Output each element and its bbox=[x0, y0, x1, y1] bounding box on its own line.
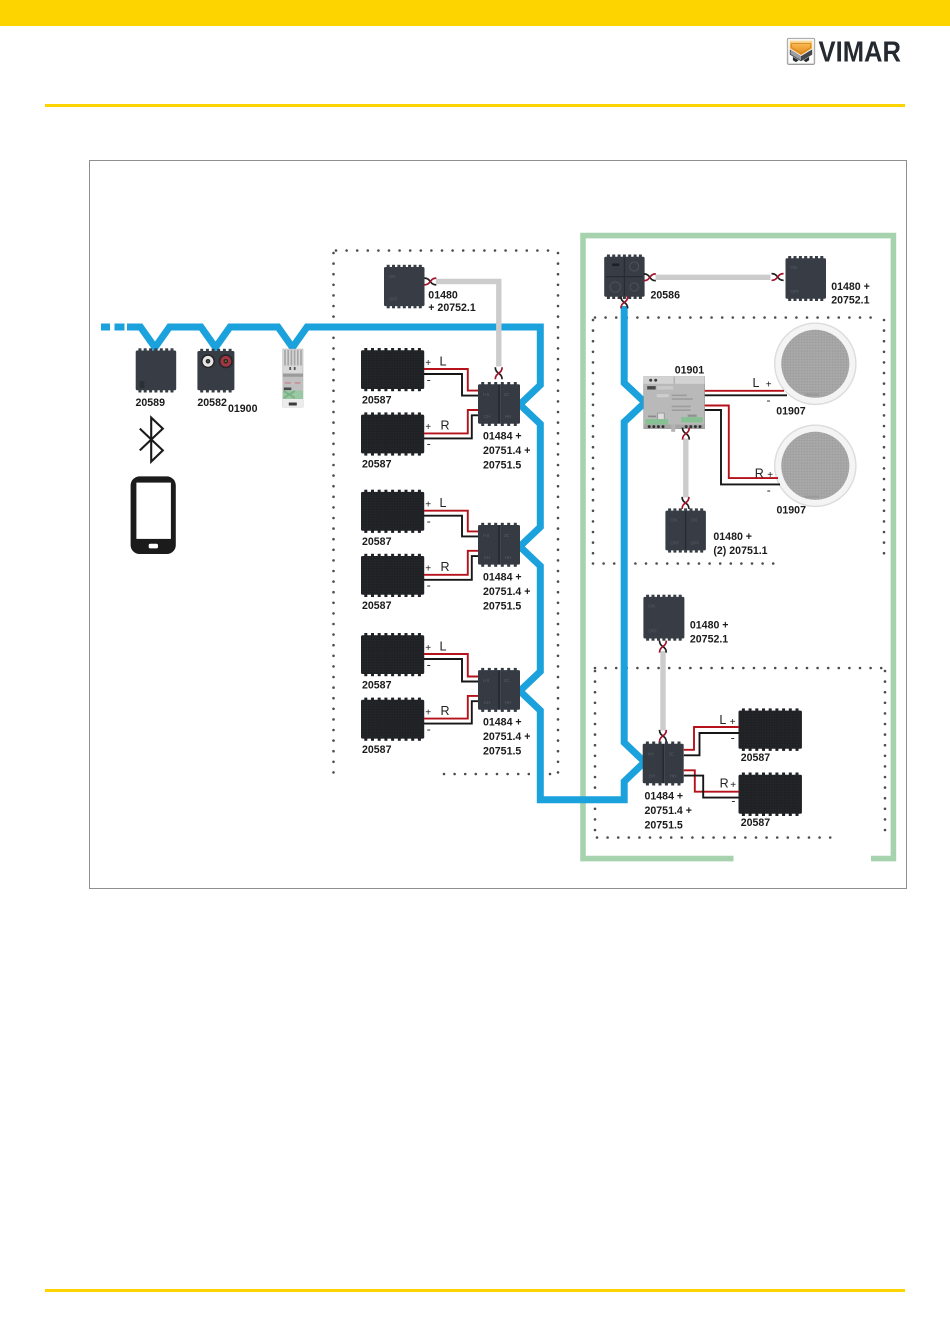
svg-text:ON: ON bbox=[648, 604, 654, 609]
svg-text:+ 20752.1: + 20752.1 bbox=[428, 302, 476, 314]
svg-text:ON: ON bbox=[670, 517, 676, 522]
svg-text:01484 +: 01484 + bbox=[645, 791, 684, 803]
svg-text:ON: ON bbox=[691, 517, 697, 522]
svg-text:L: L bbox=[753, 376, 760, 390]
svg-text:01900: 01900 bbox=[228, 403, 258, 415]
svg-text:20587: 20587 bbox=[362, 536, 392, 548]
svg-text:2C: 2C bbox=[504, 392, 509, 397]
svg-text:-: - bbox=[427, 437, 431, 451]
svg-text:CH: CH bbox=[484, 555, 490, 560]
svg-text:20587: 20587 bbox=[362, 679, 392, 691]
svg-text:20751.4 +: 20751.4 + bbox=[483, 586, 530, 598]
svg-text:+: + bbox=[425, 643, 431, 654]
svg-text:-: - bbox=[767, 483, 771, 497]
svg-text:20587: 20587 bbox=[362, 459, 392, 471]
svg-text:20582: 20582 bbox=[197, 397, 227, 409]
svg-text:-: - bbox=[767, 393, 771, 407]
svg-text:20587: 20587 bbox=[741, 752, 771, 764]
svg-text:+: + bbox=[425, 500, 431, 511]
svg-text:R: R bbox=[441, 419, 450, 433]
svg-text:+: + bbox=[425, 707, 431, 718]
svg-text:L: L bbox=[440, 639, 447, 653]
svg-text:20587: 20587 bbox=[741, 817, 771, 829]
svg-text:20751.5: 20751.5 bbox=[483, 460, 521, 472]
svg-text:20587: 20587 bbox=[362, 600, 392, 612]
svg-text:01480: 01480 bbox=[428, 290, 458, 302]
svg-text:-: - bbox=[427, 372, 431, 386]
svg-text:-: - bbox=[731, 731, 735, 745]
svg-text:-: - bbox=[427, 657, 431, 671]
svg-text:20751.4 +: 20751.4 + bbox=[483, 731, 530, 743]
svg-text:CH: CH bbox=[484, 700, 490, 705]
svg-text:+: + bbox=[730, 780, 736, 791]
svg-text:20587: 20587 bbox=[362, 394, 392, 406]
svg-text:20752.1: 20752.1 bbox=[690, 633, 728, 645]
svg-text:20751.4 +: 20751.4 + bbox=[645, 805, 692, 817]
svg-text:01480 +: 01480 + bbox=[713, 531, 752, 543]
svg-text:I+II: I+II bbox=[483, 678, 489, 683]
svg-text:-: - bbox=[427, 722, 431, 736]
svg-text:CH: CH bbox=[649, 774, 655, 779]
svg-text:01484 +: 01484 + bbox=[483, 571, 522, 583]
svg-text:ON: ON bbox=[791, 265, 797, 270]
svg-text:OFF: OFF bbox=[670, 541, 679, 546]
svg-text:20586: 20586 bbox=[651, 290, 681, 302]
svg-text:I+II: I+II bbox=[483, 533, 489, 538]
svg-text:R: R bbox=[720, 776, 729, 790]
svg-text:01901: 01901 bbox=[675, 364, 705, 376]
svg-text:HH: HH bbox=[505, 414, 511, 419]
svg-text:CH: CH bbox=[484, 414, 490, 419]
svg-text:20751.5: 20751.5 bbox=[645, 820, 683, 832]
svg-text:20587: 20587 bbox=[362, 744, 392, 756]
svg-text:OFF: OFF bbox=[691, 541, 700, 546]
svg-text:2C: 2C bbox=[504, 533, 509, 538]
svg-text:I+II: I+II bbox=[483, 392, 489, 397]
svg-text:(2) 20751.1: (2) 20751.1 bbox=[713, 545, 767, 557]
svg-text:R: R bbox=[441, 560, 450, 574]
svg-text:HH: HH bbox=[505, 555, 511, 560]
svg-text:01907: 01907 bbox=[776, 405, 806, 417]
svg-text:+: + bbox=[425, 358, 431, 369]
svg-text:HH: HH bbox=[670, 774, 676, 779]
svg-text:01480 +: 01480 + bbox=[690, 619, 729, 631]
svg-text:2C: 2C bbox=[669, 752, 674, 757]
svg-text:-: - bbox=[427, 514, 431, 528]
svg-text:OFF: OFF bbox=[648, 629, 657, 634]
svg-text:I+II: I+II bbox=[648, 752, 654, 757]
svg-text:ON: ON bbox=[389, 274, 395, 279]
svg-text:R: R bbox=[441, 704, 450, 718]
svg-text:OFF: OFF bbox=[791, 289, 800, 294]
svg-text:01484 +: 01484 + bbox=[483, 716, 522, 728]
svg-text:OFF: OFF bbox=[389, 296, 398, 301]
svg-text:20751.4 +: 20751.4 + bbox=[483, 445, 530, 457]
svg-text:01907: 01907 bbox=[777, 505, 807, 517]
svg-text:+: + bbox=[425, 422, 431, 433]
svg-text:L: L bbox=[440, 354, 447, 368]
svg-text:-: - bbox=[427, 578, 431, 592]
svg-text:2C: 2C bbox=[504, 678, 509, 683]
svg-text:20752.1: 20752.1 bbox=[831, 295, 869, 307]
svg-text:01484 +: 01484 + bbox=[483, 431, 522, 443]
svg-text:HH: HH bbox=[505, 700, 511, 705]
svg-text:+: + bbox=[730, 717, 736, 728]
svg-text:+: + bbox=[425, 564, 431, 575]
svg-text:L: L bbox=[719, 713, 726, 727]
svg-text:L: L bbox=[440, 496, 447, 510]
svg-text:R: R bbox=[755, 467, 764, 481]
svg-text:20589: 20589 bbox=[136, 397, 166, 409]
svg-text:20751.5: 20751.5 bbox=[483, 745, 521, 757]
svg-text:-: - bbox=[731, 793, 735, 807]
svg-text:+: + bbox=[767, 470, 773, 481]
svg-text:01480 +: 01480 + bbox=[831, 281, 870, 293]
svg-text:+: + bbox=[766, 380, 772, 391]
svg-text:20751.5: 20751.5 bbox=[483, 600, 521, 612]
